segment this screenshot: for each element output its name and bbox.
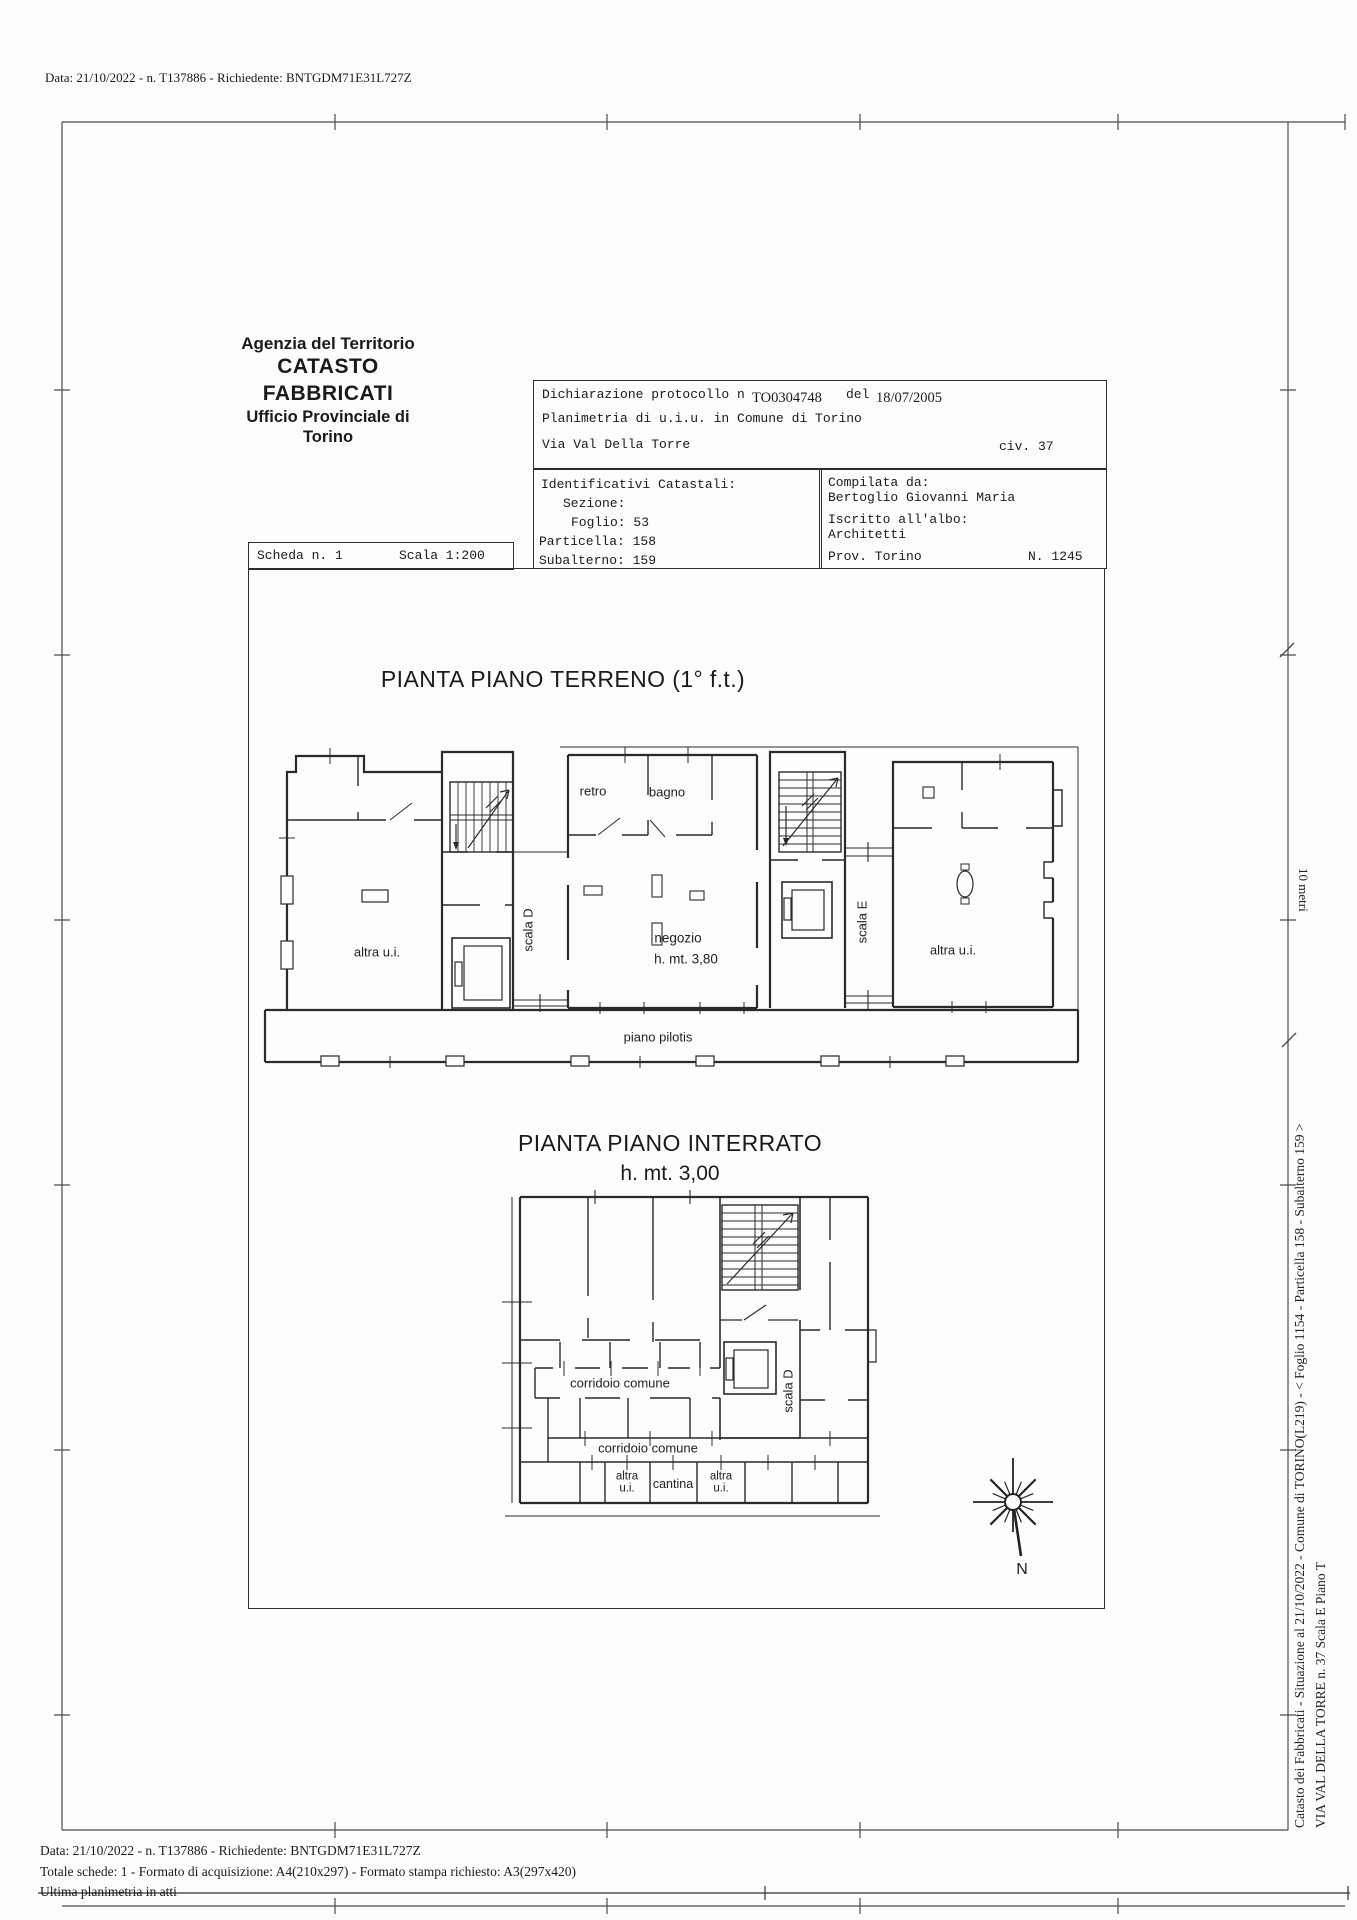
- label-piano-pilotis: piano pilotis: [624, 1030, 693, 1045]
- scheda-number: Scheda n. 1: [257, 548, 343, 563]
- scale-bar-label: 10 metri: [1295, 868, 1311, 912]
- planimetria-line: Planimetria di u.i.u. in Comune di Torin…: [542, 411, 862, 426]
- compiler-name: Bertoglio Giovanni Maria: [828, 490, 1015, 505]
- right-margin-line1: Catasto dei Fabbricati - Situazione al 2…: [1292, 1124, 1308, 1829]
- ids-title: Identificativi Catastali:: [541, 477, 736, 492]
- compiler-box: Compilata da: Bertoglio Giovanni Maria I…: [819, 468, 1107, 569]
- protocol-label: Dichiarazione protocollo n: [542, 387, 745, 402]
- label-altra-ui-1: altra u.i.: [616, 1472, 638, 1495]
- label-cantina: cantina: [653, 1477, 693, 1491]
- scheda-box: Scheda n. 1 Scala 1:200: [248, 542, 514, 570]
- compiler-prov: Prov. Torino: [828, 549, 922, 564]
- label-corridoio-2: corridoio comune: [598, 1441, 698, 1456]
- interrato-subtitle: h. mt. 3,00: [430, 1162, 910, 1186]
- ids-foglio: Foglio: 53: [571, 515, 649, 530]
- agency-city: Torino: [218, 427, 438, 448]
- top-note: Data: 21/10/2022 - n. T137886 - Richiede…: [45, 70, 412, 86]
- agency-office: Ufficio Provinciale di: [218, 407, 438, 428]
- ids-subalterno: Subalterno: 159: [539, 553, 656, 568]
- label-scala-d-terreno: scala D: [521, 908, 536, 951]
- agency-header: Agenzia del Territorio CATASTO FABBRICAT…: [218, 333, 438, 448]
- protocol-date: 18/07/2005: [876, 390, 942, 407]
- ids-sezione: Sezione:: [563, 496, 625, 511]
- label-altra-ui-left: altra u.i.: [354, 945, 400, 960]
- label-altra-ui-1-line1: altra: [616, 1472, 638, 1484]
- protocol-del-label: del: [846, 387, 869, 402]
- footer-line1: Data: 21/10/2022 - n. T137886 - Richiede…: [40, 1843, 421, 1859]
- agency-catasto: CATASTO FABBRICATI: [218, 354, 438, 407]
- compiler-albo-label: Iscritto all'albo:: [828, 512, 968, 527]
- label-altra-ui-2: altra u.i.: [710, 1472, 732, 1495]
- declaration-box: Dichiarazione protocollo n TO0304748 del…: [533, 380, 1107, 470]
- catasto-ids-box: Identificativi Catastali: Sezione: Fogli…: [533, 468, 822, 569]
- right-margin-line2: VIA VAL DELLA TORRE n. 37 Scala E Piano …: [1313, 1562, 1329, 1828]
- label-negozio-height: h. mt. 3,80: [654, 952, 718, 967]
- label-corridoio-1: corridoio comune: [570, 1376, 670, 1391]
- compiler-number: N. 1245: [1028, 549, 1083, 564]
- cadastral-document-page: Data: 21/10/2022 - n. T137886 - Richiede…: [0, 0, 1357, 1920]
- protocol-number: TO0304748: [752, 390, 822, 407]
- label-altra-ui-right: altra u.i.: [930, 943, 976, 958]
- interrato-title: PIANTA PIANO INTERRATO: [430, 1130, 910, 1157]
- label-altra-ui-2-line2: u.i.: [710, 1483, 732, 1495]
- agency-name: Agenzia del Territorio: [218, 333, 438, 354]
- label-altra-ui-2-line1: altra: [710, 1472, 732, 1484]
- compass-north-label: N: [1016, 1561, 1028, 1579]
- label-scala-d-interrato: scala D: [781, 1369, 796, 1412]
- label-retro: retro: [580, 784, 607, 799]
- scheda-scale: Scala 1:200: [399, 548, 485, 563]
- civic-number: civ. 37: [999, 439, 1054, 454]
- ids-particella: Particella: 158: [539, 534, 656, 549]
- label-scala-e: scala E: [855, 901, 870, 944]
- compiler-label: Compilata da:: [828, 475, 929, 490]
- compiler-albo-value: Architetti: [828, 527, 906, 542]
- footer-line3: Ultima planimetria in atti: [40, 1884, 177, 1900]
- label-negozio: negozio: [654, 931, 701, 946]
- street-line: Via Val Della Torre: [542, 437, 690, 452]
- label-bagno: bagno: [649, 785, 685, 800]
- terreno-title: PIANTA PIANO TERRENO (1° f.t.): [323, 666, 803, 693]
- footer-line2: Totale schede: 1 - Formato di acquisizio…: [40, 1864, 576, 1880]
- label-altra-ui-1-line2: u.i.: [616, 1483, 638, 1495]
